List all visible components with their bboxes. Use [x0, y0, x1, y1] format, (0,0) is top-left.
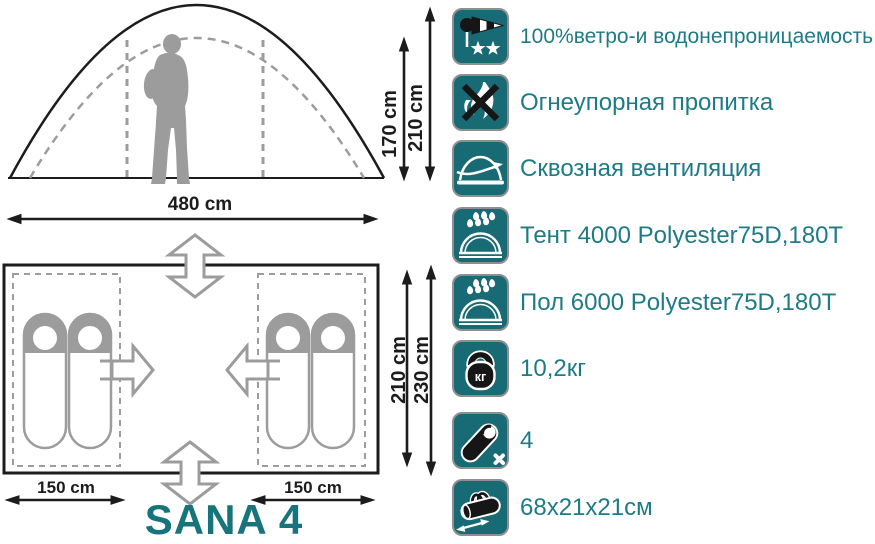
sleeping-bags — [24, 314, 354, 448]
side-outer-height-label: 210 cm — [405, 73, 427, 163]
packed-size-icon — [452, 479, 509, 536]
feature-row-floor: Пол 6000 Polyester75D,180T — [452, 274, 836, 331]
feature-row-waterproof: 100%ветро-и водонепроницаемость — [452, 8, 873, 65]
feature-label: 4 — [520, 427, 533, 455]
feature-label: 10,2кг — [520, 355, 586, 383]
plan-outer-depth-label: 230 cm — [411, 325, 433, 415]
side-width-label: 480 cm — [155, 194, 245, 216]
sleeping-bag — [24, 314, 66, 448]
feature-label: Пол 6000 Polyester75D,180T — [520, 289, 836, 317]
sleeping-bag-icon — [452, 412, 509, 469]
feature-list: 100%ветро-и водонепроницаемость Огнеупор… — [440, 0, 875, 544]
feature-row-fireproof: Огнеупорная пропитка — [452, 74, 773, 131]
floor-rating-icon — [452, 274, 509, 331]
windsock-icon — [452, 8, 509, 65]
feature-label: 100%ветро-и водонепроницаемость — [520, 25, 873, 49]
feature-label: 68x21x21см — [520, 494, 653, 522]
tent-floor-plan — [4, 235, 378, 504]
sleeping-bag — [69, 314, 111, 448]
plan-inner-depth-label: 210 cm — [388, 325, 410, 415]
feature-row-packed-size: 68x21x21см — [452, 479, 653, 536]
kg-icon-text: кг — [475, 370, 486, 384]
feature-row-capacity: 4 — [452, 412, 533, 469]
feature-row-ventilation: Сквозная вентиляция — [452, 140, 761, 197]
weight-icon: кг — [452, 340, 509, 397]
model-name: SANA 4 — [94, 496, 354, 544]
feature-label: Сквозная вентиляция — [520, 155, 761, 183]
feature-label: Тент 4000 Polyester75D,180T — [520, 222, 843, 250]
person-silhouette — [142, 34, 190, 184]
feature-row-weight: кг 10,2кг — [452, 340, 586, 397]
tent-side-view — [8, 5, 384, 184]
sleeping-bag — [312, 314, 354, 448]
no-fire-icon — [452, 74, 509, 131]
sleeping-bag — [267, 314, 309, 448]
ventilation-icon — [452, 140, 509, 197]
side-inner-height-label: 170 cm — [379, 79, 401, 169]
rainfly-rating-icon — [452, 207, 509, 264]
tent-diagrams — [0, 0, 440, 544]
feature-row-rainfly: Тент 4000 Polyester75D,180T — [452, 207, 843, 264]
tent-spec-infographic: 170 cm 210 cm 480 cm 210 cm 230 cm 150 c… — [0, 0, 875, 544]
feature-label: Огнеупорная пропитка — [520, 89, 773, 117]
